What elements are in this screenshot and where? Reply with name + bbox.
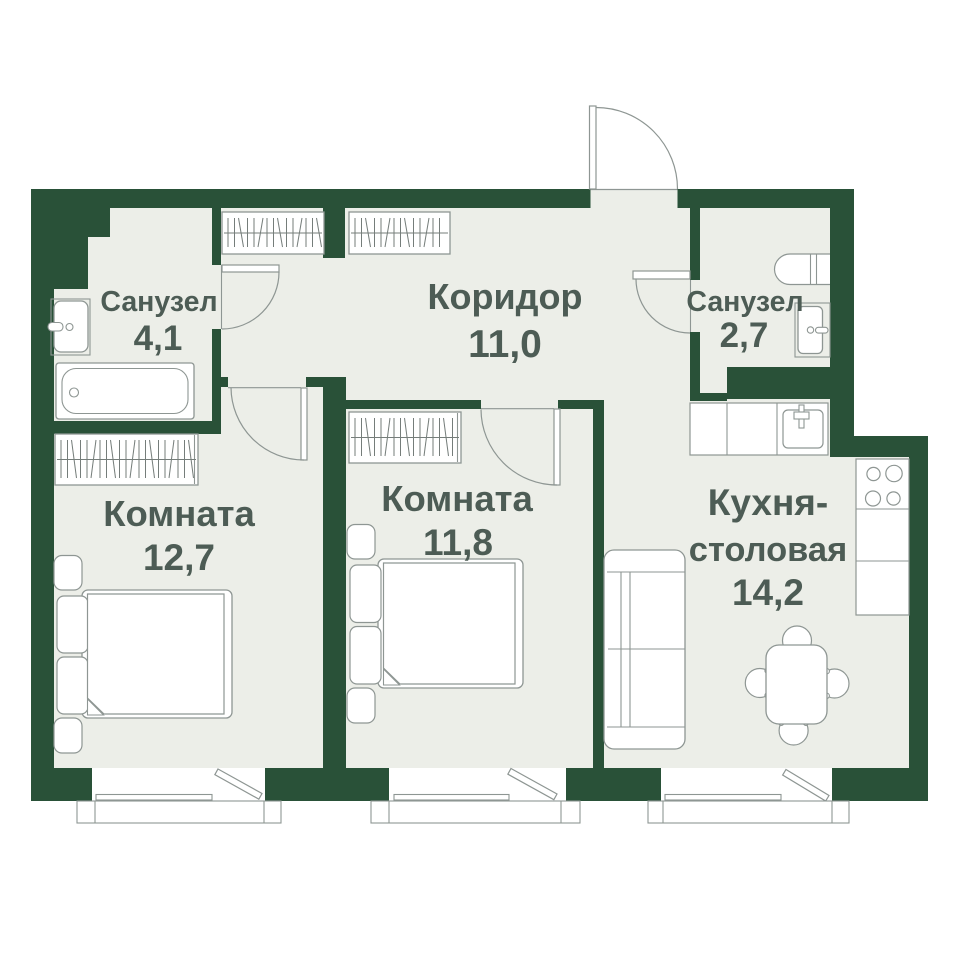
svg-text:столовая: столовая [689, 531, 847, 569]
svg-text:4,1: 4,1 [134, 319, 183, 358]
svg-text:Санузел: Санузел [100, 286, 217, 318]
svg-text:11,0: 11,0 [468, 323, 542, 366]
svg-text:11,8: 11,8 [423, 522, 493, 563]
svg-text:2,7: 2,7 [720, 316, 769, 355]
svg-text:Кухня-: Кухня- [708, 482, 828, 523]
svg-text:Коридор: Коридор [428, 276, 583, 317]
svg-text:14,2: 14,2 [732, 572, 804, 613]
svg-text:Комната: Комната [381, 478, 533, 519]
svg-text:Комната: Комната [103, 493, 255, 534]
svg-text:Санузел: Санузел [686, 286, 803, 318]
svg-text:12,7: 12,7 [143, 537, 215, 578]
